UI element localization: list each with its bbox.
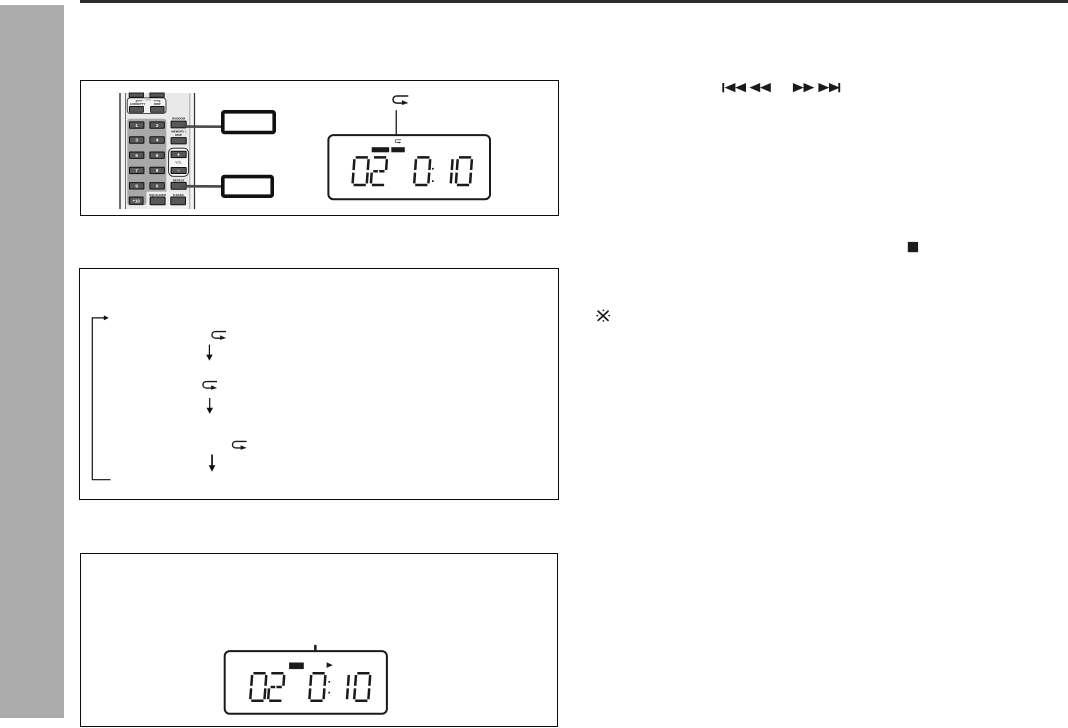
- svg-text:3: 3: [135, 138, 138, 143]
- svg-text:8: 8: [156, 168, 159, 173]
- svg-text:6: 6: [156, 153, 159, 158]
- svg-text:2: 2: [156, 123, 159, 128]
- svg-text:4: 4: [156, 138, 159, 143]
- svg-text:+: +: [177, 153, 180, 159]
- svg-text:DISP: DISP: [175, 133, 182, 137]
- svg-text:+10: +10: [133, 198, 141, 203]
- svg-text:VOL: VOL: [175, 161, 182, 165]
- svg-text:7: 7: [135, 168, 138, 173]
- svg-text:−: −: [177, 169, 180, 175]
- svg-text:5: 5: [135, 153, 138, 158]
- svg-text:RDS: RDS: [145, 98, 151, 102]
- svg-text:DISP: DISP: [154, 102, 161, 106]
- svg-text:9: 9: [135, 184, 138, 189]
- svg-text:RANDOM: RANDOM: [172, 116, 186, 120]
- svg-text:1: 1: [135, 123, 138, 128]
- svg-text:REPEAT: REPEAT: [173, 178, 185, 182]
- svg-text:AUDIO/TTY: AUDIO/TTY: [130, 102, 146, 106]
- svg-text:0: 0: [156, 184, 159, 189]
